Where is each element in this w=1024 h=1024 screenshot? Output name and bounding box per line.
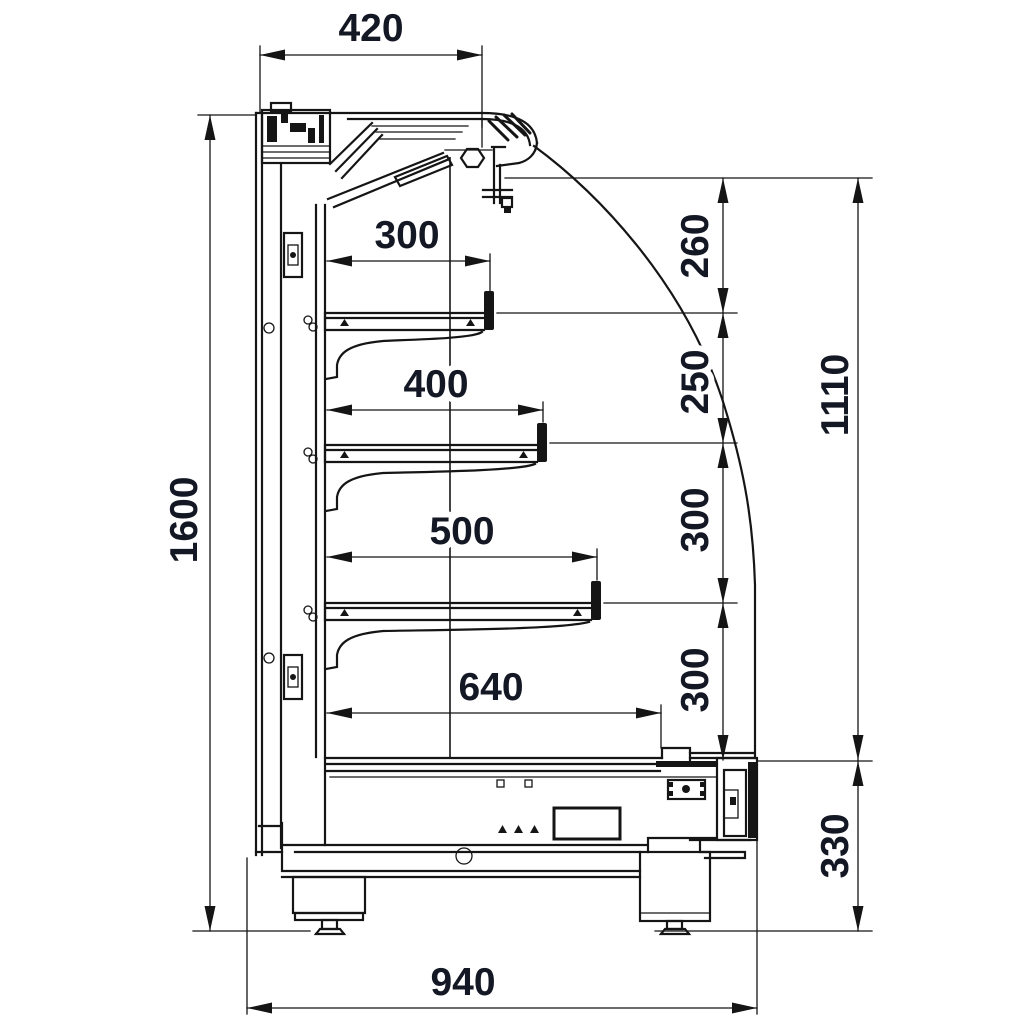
front-column <box>648 753 757 858</box>
dim-overall-height-label: 1600 <box>163 477 206 564</box>
fan-nut <box>461 149 484 167</box>
wall-hole-upper <box>264 323 274 333</box>
shelf-2-price-stopper <box>537 423 547 462</box>
dim-base-height-label: 330 <box>814 813 857 878</box>
dim-gap-canopy-shelf1-label: 260 <box>674 213 717 278</box>
shelf-3-price-stopper <box>591 581 601 620</box>
left-foot <box>293 877 365 934</box>
dim-gap-shelf2-shelf3-label: 300 <box>674 487 717 552</box>
drain-hole <box>456 848 472 864</box>
dim-shelf1-depth-label: 300 <box>374 214 439 257</box>
right-foot <box>640 852 710 934</box>
shelf-1-price-stopper <box>484 291 494 330</box>
dim-gap-shelf3-base-label: 300 <box>674 647 717 712</box>
rating-label-plate <box>554 808 620 839</box>
dim-base-shelf-depth-label: 640 <box>458 666 523 709</box>
shelf-3 <box>325 581 601 669</box>
mounting-clamp <box>483 147 512 213</box>
base-unit <box>282 748 757 934</box>
bottom-rail <box>282 852 640 877</box>
canopy-front-corner <box>482 113 537 166</box>
dimension-arrows <box>205 50 864 1014</box>
deck-front-step <box>662 748 690 762</box>
canopy <box>256 103 537 213</box>
dim-gap-shelf1-shelf2-label: 250 <box>674 349 717 414</box>
dim-overall-depth-label: 940 <box>430 961 495 1004</box>
dim-top-depth-label: 420 <box>338 7 403 50</box>
dim-shelf3-depth-label: 500 <box>429 510 494 553</box>
wall-hole-lower <box>264 653 274 663</box>
dim-opening-height-label: 1110 <box>814 354 857 436</box>
technical-drawing-page: 420 1600 300 400 500 640 260 250 300 300… <box>0 0 1024 1024</box>
deck-front-grille <box>656 761 716 767</box>
back-wall <box>256 113 325 855</box>
display-case-section-drawing: 420 1600 300 400 500 640 260 250 300 300… <box>0 0 1024 1024</box>
shelf-2 <box>325 423 547 511</box>
dim-shelf2-depth-label: 400 <box>403 363 468 406</box>
